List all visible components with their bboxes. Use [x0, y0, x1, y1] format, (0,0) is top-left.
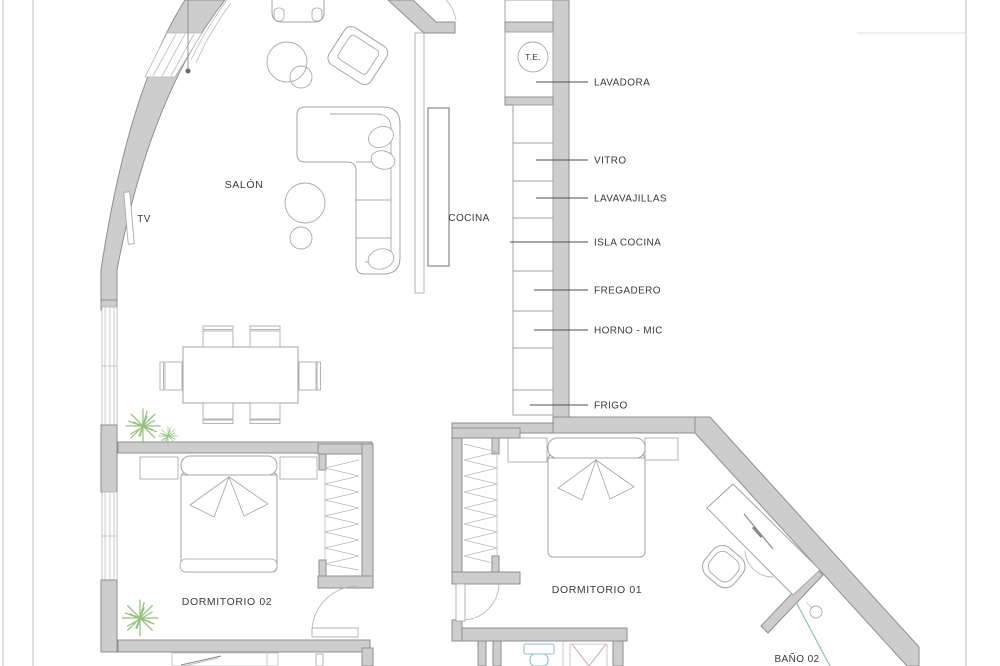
closet-wall-stub	[505, 22, 553, 32]
callout-vitro: VITRO	[594, 156, 627, 167]
nightstand	[645, 438, 678, 460]
toilet-bowl	[530, 654, 548, 666]
label-salon: SALÓN	[225, 178, 264, 191]
bed-body	[548, 454, 645, 557]
bathroom-wall	[493, 641, 501, 666]
entry-diagonal-wall	[388, 0, 455, 33]
bed-headboard	[181, 456, 277, 475]
main-diagonal-wall	[695, 417, 919, 666]
kitchen-partition	[415, 33, 424, 293]
callout-lavadora: LAVADORA	[594, 78, 650, 89]
wardrobe-dormitorio-02	[318, 444, 373, 588]
dining-chair	[250, 331, 280, 347]
callout-fregadero: FREGADERO	[594, 286, 661, 297]
bed-footboard	[180, 559, 277, 572]
door-dormitorio-02	[312, 586, 358, 637]
nightstand	[140, 457, 178, 479]
callout-horno-mic: HORNO - MIC	[594, 326, 663, 337]
door-arc	[312, 586, 358, 632]
dining-chair	[250, 403, 280, 419]
bed-body	[181, 472, 277, 572]
label-bano-02: BAÑO 02	[774, 652, 819, 665]
bed-dormitorio-01	[508, 438, 678, 557]
dining-chair-back	[203, 326, 233, 330]
bed-headboard	[548, 438, 645, 458]
closet-cell	[505, 0, 553, 22]
callout-isla-cocina: ISLA COCINA	[594, 238, 661, 249]
bathroom-bottom	[524, 641, 607, 666]
pencil-object	[181, 656, 221, 665]
dining-chair	[203, 403, 233, 419]
round-table	[290, 227, 312, 249]
sofa	[297, 107, 400, 274]
kitchen-island	[428, 108, 449, 266]
desk-chair	[698, 541, 750, 593]
fixture-line	[806, 602, 812, 608]
callout-lavavajillas: LAVAVAJILLAS	[594, 194, 667, 205]
room-below-cut	[172, 652, 323, 666]
floor-plan-page: T.E.	[0, 0, 1000, 666]
label-dormitorio-01: DORMITORIO 01	[552, 584, 642, 596]
shower-cross	[572, 644, 606, 666]
dining-chair	[165, 362, 182, 390]
entry-door-arc	[446, 0, 456, 20]
fixture-knob	[810, 606, 822, 618]
floor-plan-canvas: T.E.	[0, 0, 1000, 666]
door-leaf	[456, 584, 465, 621]
laundry-closet: T.E.	[505, 0, 553, 105]
dining-chair	[299, 362, 316, 390]
nightstand	[280, 457, 317, 479]
dining-chair-back	[250, 420, 280, 424]
door-leaf	[312, 628, 358, 637]
door-arc	[462, 583, 499, 620]
dormitorio-01-corner-wall	[452, 620, 462, 641]
round-table	[290, 66, 312, 88]
wardrobe-hatch	[464, 444, 497, 564]
label-tv: TV	[137, 214, 151, 225]
wardrobe-hatch	[325, 460, 359, 570]
dormitorio-01-bottom-wall	[462, 628, 627, 641]
dining-chair-back	[203, 420, 233, 424]
closet-wall-stub	[505, 97, 553, 105]
round-table	[285, 183, 325, 223]
armchair-1-arm	[274, 8, 284, 21]
dining-chair-back	[160, 362, 164, 390]
west-wall-segment	[101, 425, 117, 492]
dormitorio-02-bottom-wall	[118, 640, 370, 652]
wall-stub	[362, 648, 373, 666]
furniture-fragment	[172, 653, 278, 666]
dining-table	[183, 347, 298, 403]
door-leaf-fragment	[316, 654, 323, 666]
bathroom-wall	[478, 641, 486, 666]
toilet-tank	[524, 644, 554, 654]
nightstand	[508, 438, 547, 462]
pendant-light	[186, 69, 191, 74]
plant-icon	[119, 597, 161, 639]
door-dormitorio-01	[456, 583, 499, 621]
bathroom-wall	[613, 641, 623, 666]
kitchen-wall	[553, 0, 569, 417]
dormitorio-01-top-wall	[553, 417, 695, 433]
round-table	[267, 42, 307, 82]
armchair-1-arm	[312, 8, 322, 21]
bed-dormitorio-02	[140, 456, 317, 572]
label-dormitorio-02: DORMITORIO 02	[182, 596, 272, 608]
pencil-object	[184, 658, 218, 666]
dining-set	[160, 326, 321, 424]
label-cocina: COCINA	[448, 213, 489, 224]
kitchen-counter	[513, 105, 553, 415]
dining-chair-back	[317, 362, 321, 390]
dining-chair-back	[250, 326, 280, 330]
shower-outline	[570, 644, 607, 666]
dormitorio-02	[140, 444, 373, 637]
plant-icon	[123, 406, 163, 446]
west-wall-segment	[101, 580, 117, 652]
dining-chair	[203, 331, 233, 347]
label-te: T.E.	[525, 52, 541, 62]
callout-frigo: FRIGO	[594, 401, 628, 412]
armchair-2	[325, 23, 391, 87]
